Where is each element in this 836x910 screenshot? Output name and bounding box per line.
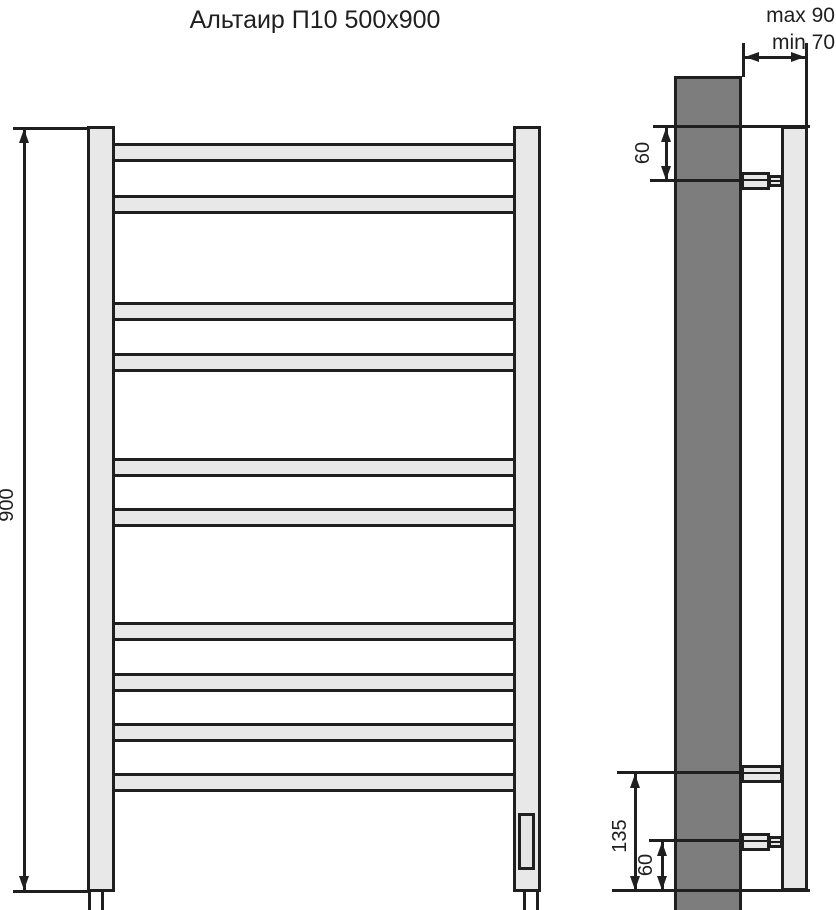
towel-bar [112, 143, 516, 162]
bottom-element-offset-label: 60 [635, 840, 663, 890]
towel-bar [112, 353, 516, 372]
towel-bar [112, 723, 516, 742]
height-dimension-label: 900 [0, 475, 24, 535]
left-connection-pipe [88, 890, 104, 910]
arrowhead-up-icon [661, 128, 671, 142]
arrowhead-up-icon [19, 129, 29, 143]
towel-bar [112, 508, 516, 527]
towel-bar [112, 195, 516, 214]
heating-element [518, 813, 535, 870]
arrowhead-right-icon [791, 52, 805, 62]
arrowhead-up-icon [630, 774, 640, 788]
rail-side-profile [781, 126, 808, 891]
top-offset-label: 60 [632, 128, 660, 178]
max-distance-label: max 90 [745, 4, 835, 28]
wall [674, 76, 742, 910]
arrowhead-down-icon [661, 166, 671, 180]
left-rail [87, 126, 115, 892]
drawing-title: Альтаир П10 500x900 [140, 6, 490, 35]
towel-bar [112, 458, 516, 477]
towel-bar [112, 673, 516, 692]
towel-bar [112, 773, 516, 792]
arrowhead-down-icon [19, 876, 29, 890]
technical-drawing: Альтаир П10 500x900 900 [0, 0, 836, 910]
bottom-offset-label: 135 [609, 806, 637, 866]
towel-bar [112, 622, 516, 641]
right-connection-pipe [523, 890, 539, 910]
right-rail [513, 126, 541, 892]
towel-bar [112, 302, 516, 321]
dimension-tick-bottom [13, 890, 89, 893]
arrowhead-left-icon [745, 52, 759, 62]
